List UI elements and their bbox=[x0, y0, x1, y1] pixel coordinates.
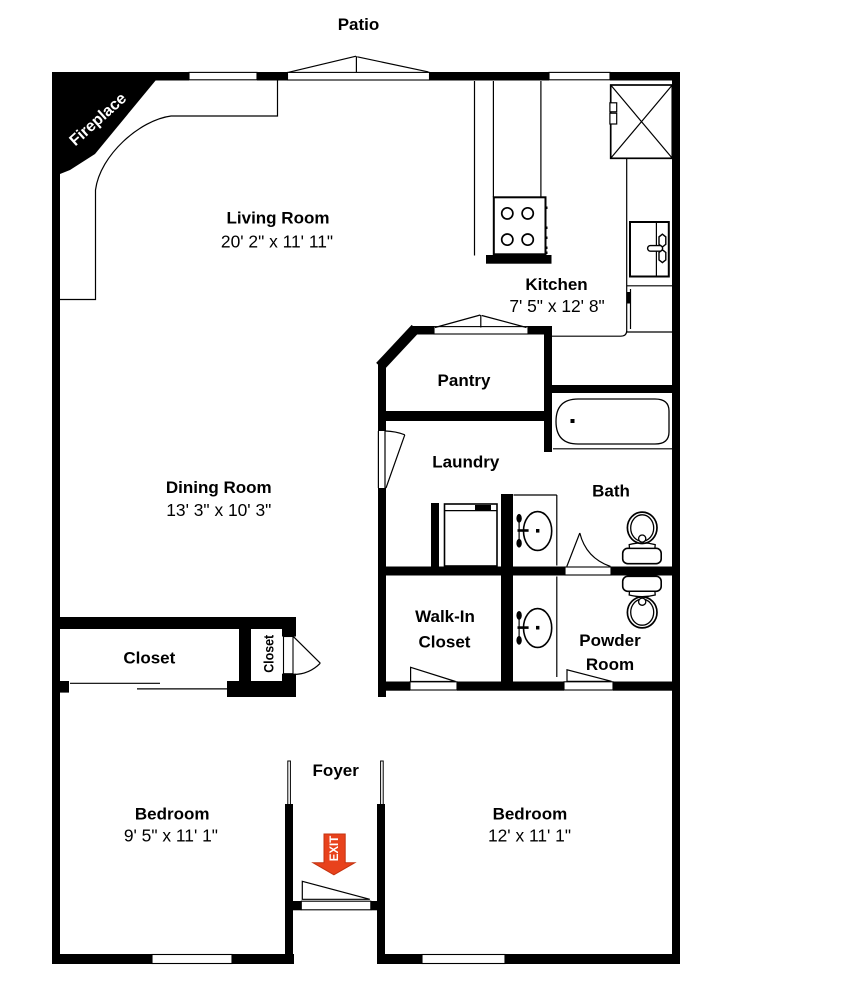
svg-text:Foyer: Foyer bbox=[313, 761, 360, 780]
svg-text:Closet: Closet bbox=[123, 649, 175, 668]
svg-text:13' 3" x 10' 3": 13' 3" x 10' 3" bbox=[166, 500, 271, 520]
svg-text:Laundry: Laundry bbox=[432, 453, 500, 472]
svg-text:Closet: Closet bbox=[419, 633, 471, 652]
svg-text:12' x 11' 1": 12' x 11' 1" bbox=[488, 826, 571, 846]
svg-text:Walk-In: Walk-In bbox=[415, 607, 475, 626]
svg-text:Room: Room bbox=[586, 655, 634, 674]
svg-text:20' 2" x 11' 11": 20' 2" x 11' 11" bbox=[221, 232, 333, 252]
svg-text:Bath: Bath bbox=[592, 482, 630, 501]
svg-text:EXIT: EXIT bbox=[329, 836, 341, 862]
svg-text:Powder: Powder bbox=[579, 631, 641, 650]
svg-text:Pantry: Pantry bbox=[438, 371, 491, 390]
svg-text:7' 5" x 12' 8": 7' 5" x 12' 8" bbox=[509, 296, 604, 316]
svg-text:Closet: Closet bbox=[262, 634, 277, 672]
svg-text:Bedroom: Bedroom bbox=[135, 805, 210, 824]
svg-text:Living Room: Living Room bbox=[227, 209, 330, 228]
svg-text:Kitchen: Kitchen bbox=[525, 275, 587, 294]
svg-text:Dining Room: Dining Room bbox=[166, 478, 272, 497]
svg-text:Bedroom: Bedroom bbox=[493, 805, 568, 824]
svg-text:9' 5" x 11' 1": 9' 5" x 11' 1" bbox=[124, 826, 218, 846]
svg-text:Patio: Patio bbox=[338, 15, 380, 34]
